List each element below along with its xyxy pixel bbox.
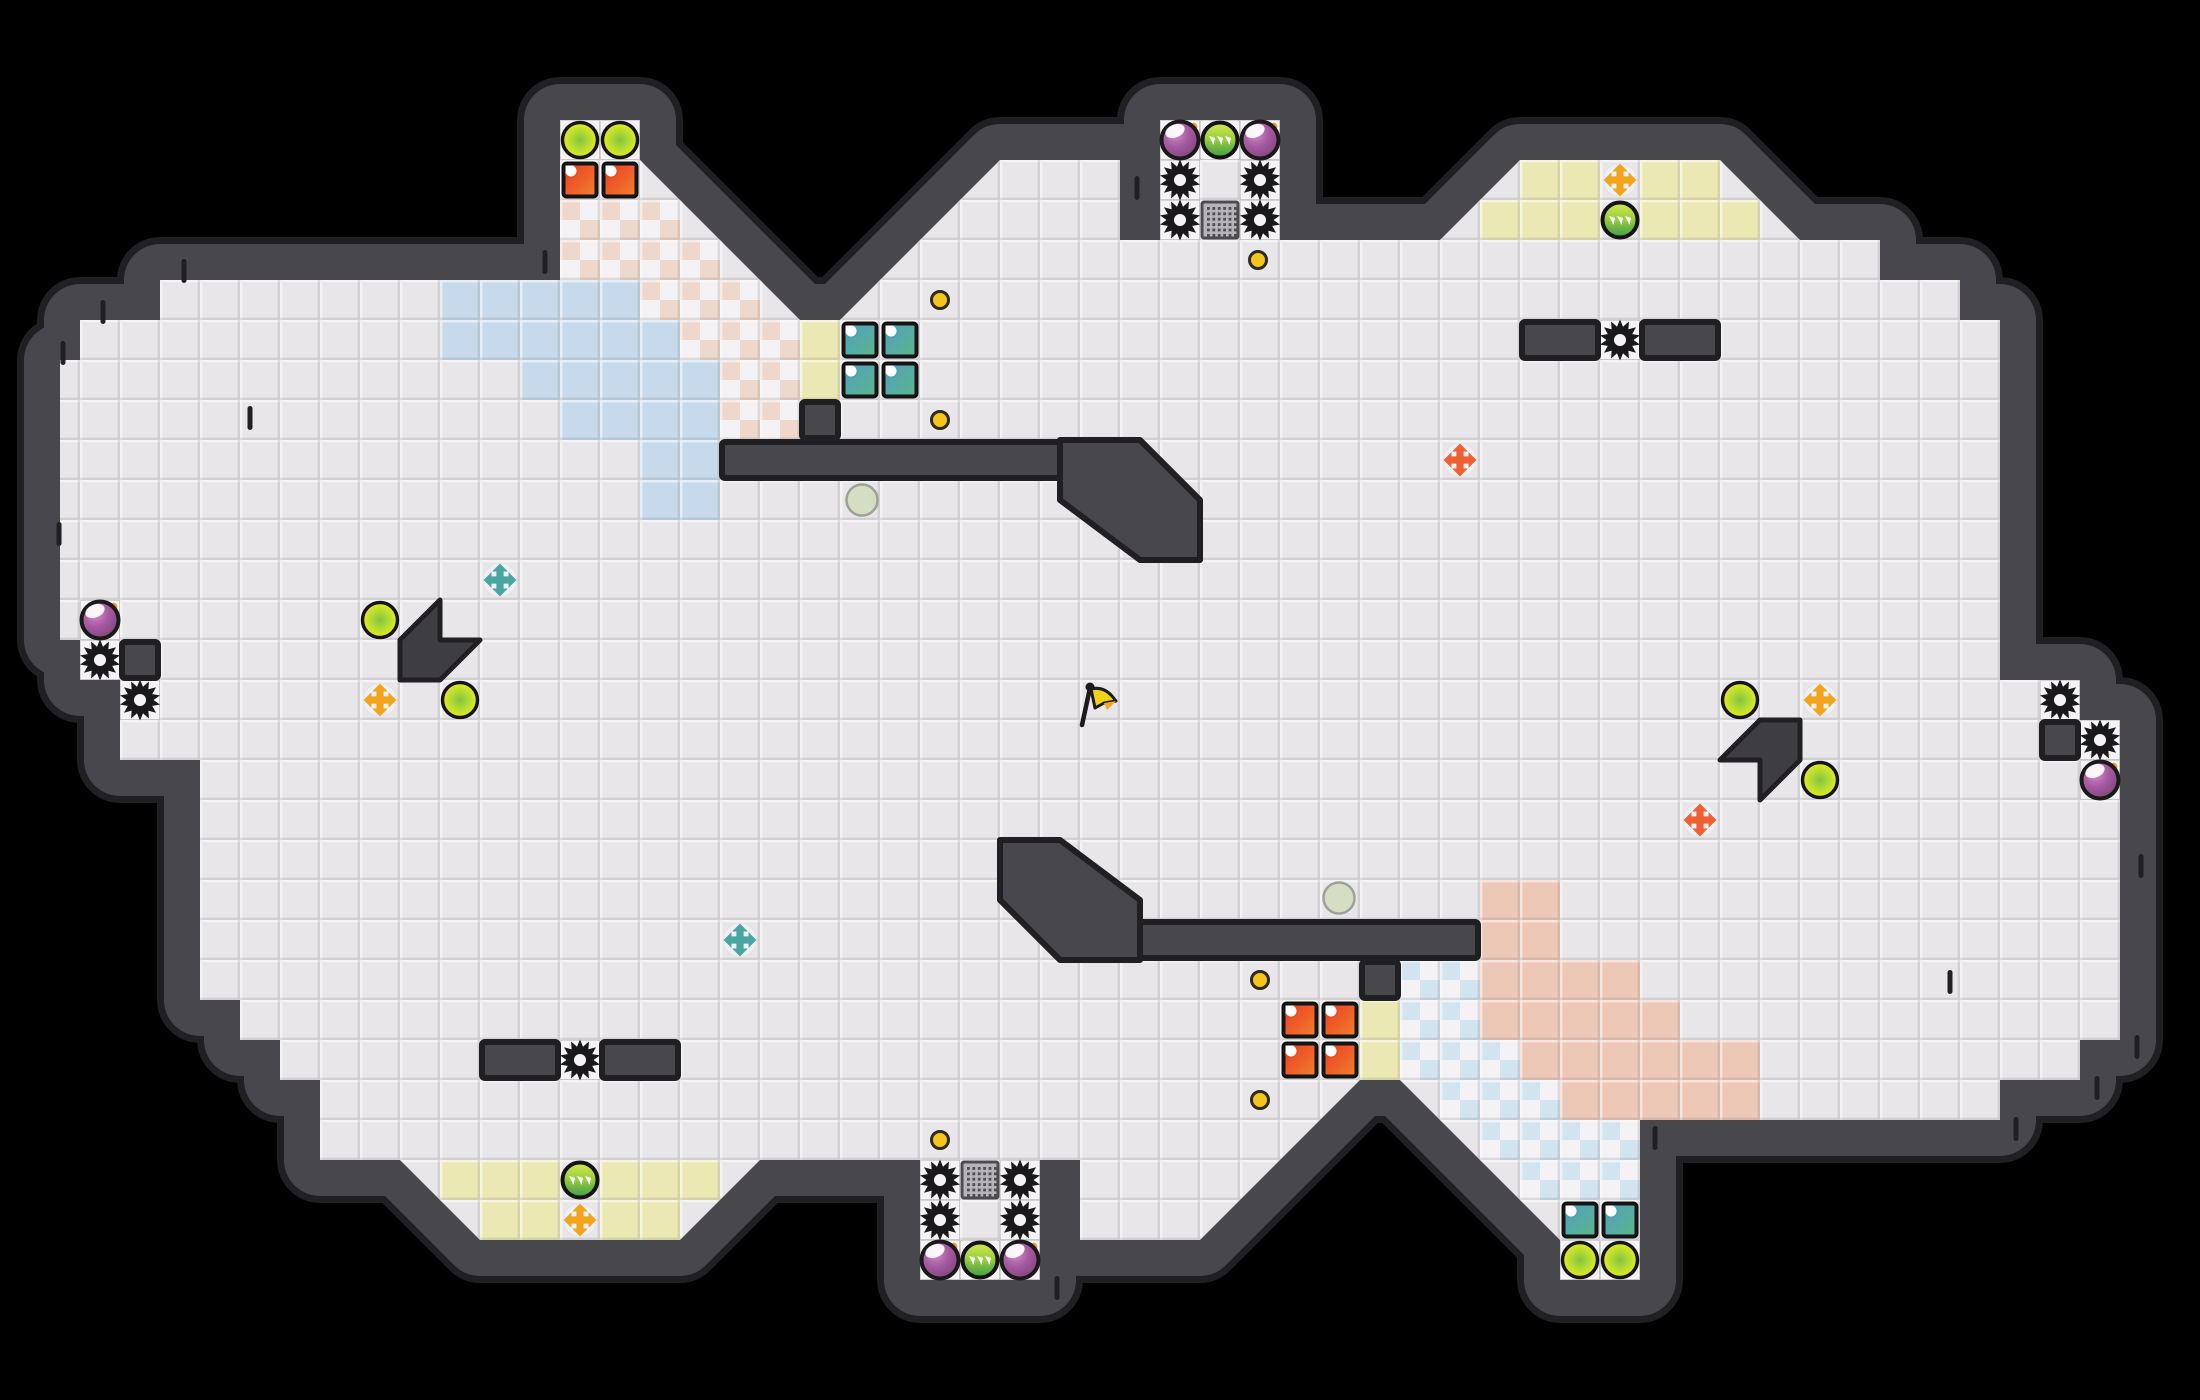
red-block-icon[interactable] <box>1284 1044 1317 1077</box>
teal-block-icon[interactable] <box>1564 1204 1597 1237</box>
spike-orb-icon[interactable] <box>563 1163 598 1198</box>
red-block-icon[interactable] <box>564 164 597 197</box>
pickup-orb-icon[interactable] <box>440 680 480 720</box>
spawn-circle <box>847 485 878 516</box>
bomb-icon[interactable] <box>1162 121 1199 158</box>
coin-icon[interactable] <box>1252 972 1269 989</box>
red-block-icon[interactable] <box>604 164 637 197</box>
spike-orb-icon[interactable] <box>1603 203 1638 238</box>
red-block-icon[interactable] <box>1324 1004 1357 1037</box>
teal-block-icon[interactable] <box>1604 1204 1637 1237</box>
pickup-orb-icon[interactable] <box>1720 680 1760 720</box>
bomb-icon[interactable] <box>922 1241 959 1278</box>
map-canvas[interactable] <box>0 0 2200 1400</box>
teal-block-icon[interactable] <box>884 324 917 357</box>
coin-icon[interactable] <box>932 292 949 309</box>
coin-icon[interactable] <box>1252 1092 1269 1109</box>
game-arena-map[interactable] <box>0 0 2200 1400</box>
pickup-orb-icon[interactable] <box>603 123 638 158</box>
pickup-orb-icon[interactable] <box>1800 760 1840 800</box>
teal-block-icon[interactable] <box>884 364 917 397</box>
spike-orb-icon[interactable] <box>1203 123 1238 158</box>
bomb-icon[interactable] <box>2082 761 2119 798</box>
coin-icon[interactable] <box>932 1132 949 1149</box>
coin-icon[interactable] <box>1250 252 1267 269</box>
vent-grate-icon <box>1202 202 1238 238</box>
teal-block-icon[interactable] <box>844 364 877 397</box>
red-block-icon[interactable] <box>1324 1044 1357 1077</box>
spawn-circle <box>1324 883 1355 914</box>
pickup-orb-icon[interactable] <box>1603 1243 1638 1278</box>
pickup-orb-icon[interactable] <box>1563 1243 1598 1278</box>
bomb-icon[interactable] <box>1002 1241 1039 1278</box>
coin-icon[interactable] <box>932 412 949 429</box>
pickup-orb-icon[interactable] <box>360 600 400 640</box>
bomb-icon[interactable] <box>82 601 119 638</box>
red-block-icon[interactable] <box>1284 1004 1317 1037</box>
pickup-orb-icon[interactable] <box>563 123 598 158</box>
spike-orb-icon[interactable] <box>963 1243 998 1278</box>
teal-block-icon[interactable] <box>844 324 877 357</box>
bomb-icon[interactable] <box>1242 121 1279 158</box>
vent-grate-icon <box>962 1162 998 1198</box>
